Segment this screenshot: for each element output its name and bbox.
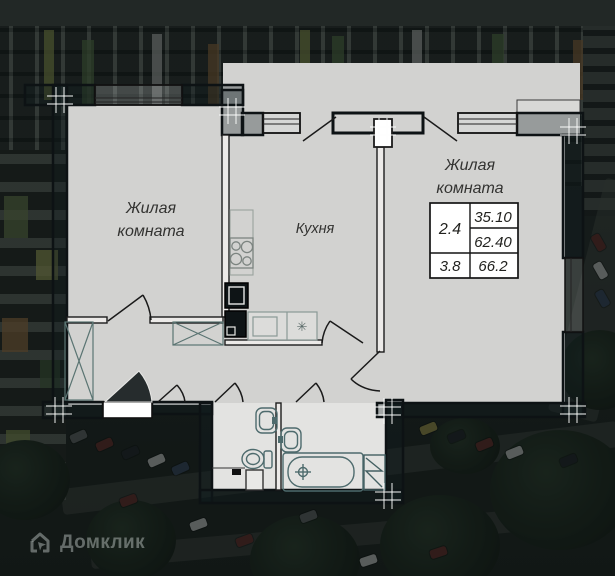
room-left-label-line1: Жилая: [125, 200, 176, 217]
table-value-right-bottom: 66.2: [478, 258, 508, 275]
rooms-area-left: [67, 105, 223, 405]
washing-machine-icon: [246, 470, 263, 490]
domclick-house-icon: [28, 531, 52, 555]
wall-corner-pier: [222, 90, 243, 135]
area-table: 2.4 3.8 35.10 62.40 66.2: [430, 203, 518, 278]
window-kitchen: [263, 113, 300, 133]
partition-kitchen-rightroom: [377, 147, 384, 352]
fridge-icon: ✳: [297, 319, 308, 334]
wall-bottom-left: [43, 402, 103, 418]
window-right-wall: [565, 258, 583, 332]
table-value-left-bottom: 3.8: [440, 258, 462, 275]
wall-bathroom-bottom: [200, 490, 403, 503]
bathroom-area: [212, 403, 386, 491]
table-value-left-top: 2.4: [438, 221, 461, 238]
oven-icon: [225, 283, 248, 308]
wall-kitchen-top: [242, 113, 263, 135]
wall-top-right-corner: [517, 113, 583, 135]
threshold-mark: [232, 469, 241, 475]
table-value-right-top: 35.10: [474, 209, 512, 226]
wall-bottom-right: [377, 403, 585, 417]
domclick-brand-text: Домклик: [60, 532, 145, 554]
cabinet-icon: [225, 311, 246, 337]
window-right-room-top: [458, 113, 517, 133]
domclick-watermark: Домклик: [28, 531, 145, 555]
wall-bathroom-left: [200, 403, 212, 503]
kitchen-label: Кухня: [296, 221, 335, 237]
room-left-label-line2: комната: [117, 223, 184, 240]
table-value-right-middle: 62.40: [474, 234, 512, 251]
window-left-room: [95, 85, 182, 105]
room-right-label-line1: Жилая: [444, 157, 495, 174]
vent-shaft: [374, 119, 392, 147]
screenshot: ✳: [0, 0, 615, 576]
floor-plan: ✳: [0, 0, 615, 576]
room-right-label-line2: комната: [436, 180, 503, 197]
partition-kitchen-hall: [225, 340, 322, 345]
balcony-slab-edge: [517, 100, 580, 113]
wall-right-upper: [563, 135, 583, 258]
entrance-opening: [103, 402, 152, 418]
